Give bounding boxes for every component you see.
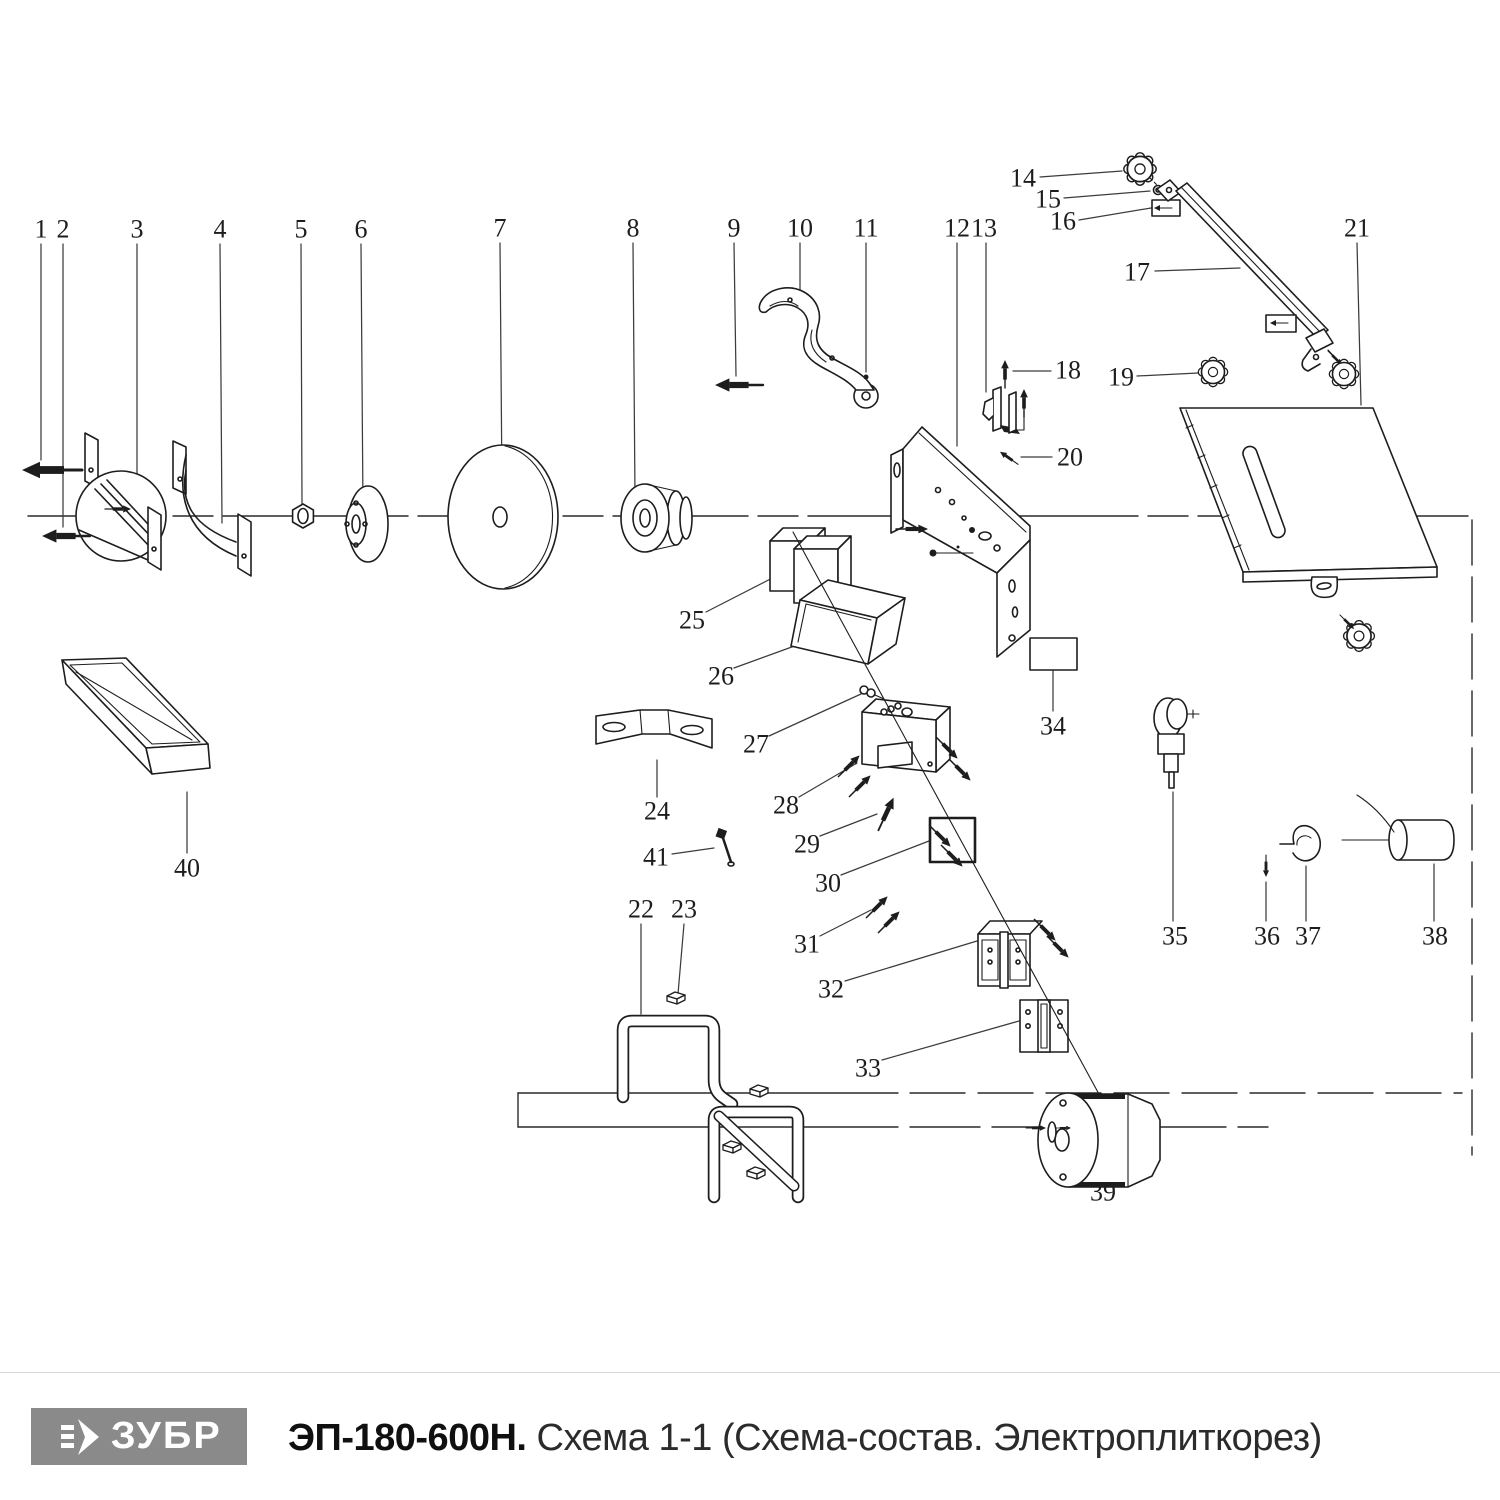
assembly-axis	[793, 532, 1100, 1096]
part-label-29: 29	[794, 830, 820, 859]
part-label-10: 10	[787, 214, 813, 243]
part-star-knob-19	[1198, 357, 1227, 386]
part-screw-20	[998, 449, 1019, 467]
part-power-plug	[1154, 698, 1199, 788]
part-label-9: 9	[728, 214, 741, 243]
page: 1234567891011121314151617181920212223242…	[0, 0, 1500, 1500]
part-label-12: 12	[944, 214, 970, 243]
part-cable-clip	[1280, 826, 1320, 861]
part-star-knob-table	[1338, 613, 1374, 651]
part-label-27: 27	[743, 730, 769, 759]
centerlines	[28, 516, 1472, 1155]
part-pin-dot	[864, 375, 869, 380]
part-inner-flange	[621, 484, 692, 552]
part-label-plate-34	[1030, 638, 1077, 670]
part-label-11: 11	[853, 214, 878, 243]
zubr-logo-arrow-icon	[59, 1415, 105, 1459]
part-label-26: 26	[708, 662, 734, 691]
part-arbor-bolt	[715, 378, 763, 391]
part-label-4: 4	[214, 215, 227, 244]
part-star-knob-rail	[1329, 359, 1358, 388]
part-label-41: 41	[643, 843, 669, 872]
part-label-40: 40	[174, 854, 200, 883]
part-water-tray	[62, 658, 210, 774]
part-label-22: 22	[628, 895, 654, 924]
part-wrench-plate	[596, 710, 712, 748]
part-label-35: 35	[1162, 922, 1188, 951]
part-blade-guard-arc	[173, 441, 251, 576]
part-label-7: 7	[494, 214, 507, 243]
part-guide-rail	[1157, 180, 1344, 371]
part-label-19: 19	[1108, 363, 1134, 392]
part-screw-36	[1263, 855, 1269, 877]
part-cutting-disc	[448, 445, 558, 589]
brand-text: ЗУБР	[111, 1415, 222, 1458]
part-label-30: 30	[815, 869, 841, 898]
part-motor	[1026, 1093, 1160, 1187]
part-label-24: 24	[644, 797, 670, 826]
part-label-34: 34	[1040, 712, 1066, 741]
part-blade-guard-left	[76, 433, 166, 570]
footer: ЗУБР ЭП-180-600Н. Схема 1-1 (Схема-соста…	[0, 1373, 1500, 1500]
part-label-2: 2	[57, 215, 70, 244]
part-brush-holder-33	[1020, 1000, 1068, 1052]
part-label-37: 37	[1295, 922, 1321, 951]
exploded-diagram: 1234567891011121314151617181920212223242…	[0, 0, 1500, 1372]
schema-title: ЭП-180-600Н. Схема 1-1 (Схема-состав. Эл…	[288, 1417, 1322, 1460]
part-label-38: 38	[1422, 922, 1448, 951]
part-label-32: 32	[818, 975, 844, 1004]
part-pin-41	[716, 828, 734, 866]
part-leg-stand	[623, 1021, 798, 1197]
part-label-36: 36	[1254, 922, 1280, 951]
part-label-39: 39	[1090, 1178, 1116, 1207]
part-guard-bracket	[759, 288, 878, 408]
part-table	[1180, 408, 1437, 597]
part-label-6: 6	[355, 215, 368, 244]
part-label-8: 8	[627, 214, 640, 243]
part-label-14: 14	[1010, 164, 1036, 193]
model-number: ЭП-180-600Н.	[288, 1417, 526, 1459]
part-label-3: 3	[131, 215, 144, 244]
part-label-31: 31	[794, 930, 820, 959]
part-capacitor	[1342, 795, 1454, 860]
zubr-logo: ЗУБР	[31, 1408, 247, 1465]
part-label-18: 18	[1055, 356, 1081, 385]
leader-lines	[41, 171, 1434, 1180]
part-label-20: 20	[1057, 443, 1083, 472]
part-label-21: 21	[1344, 214, 1370, 243]
part-label-23: 23	[671, 895, 697, 924]
part-switch-box	[862, 699, 950, 772]
part-outer-flange	[345, 486, 388, 562]
part-labels: 1234567891011121314151617181920212223242…	[35, 164, 1449, 1207]
part-label-28: 28	[773, 791, 799, 820]
part-label-17: 17	[1124, 258, 1150, 287]
part-label-5: 5	[295, 215, 308, 244]
part-slide-plate-16	[1152, 200, 1180, 216]
part-support-bracket	[891, 427, 1030, 657]
part-label-25: 25	[679, 606, 705, 635]
part-nut	[293, 504, 314, 528]
part-label-33: 33	[855, 1054, 881, 1083]
part-label-13: 13	[971, 214, 997, 243]
part-label-16: 16	[1050, 207, 1076, 236]
part-label-1: 1	[35, 215, 48, 244]
schema-subtitle: Схема 1-1 (Схема-состав. Электроплиткоре…	[537, 1417, 1322, 1459]
